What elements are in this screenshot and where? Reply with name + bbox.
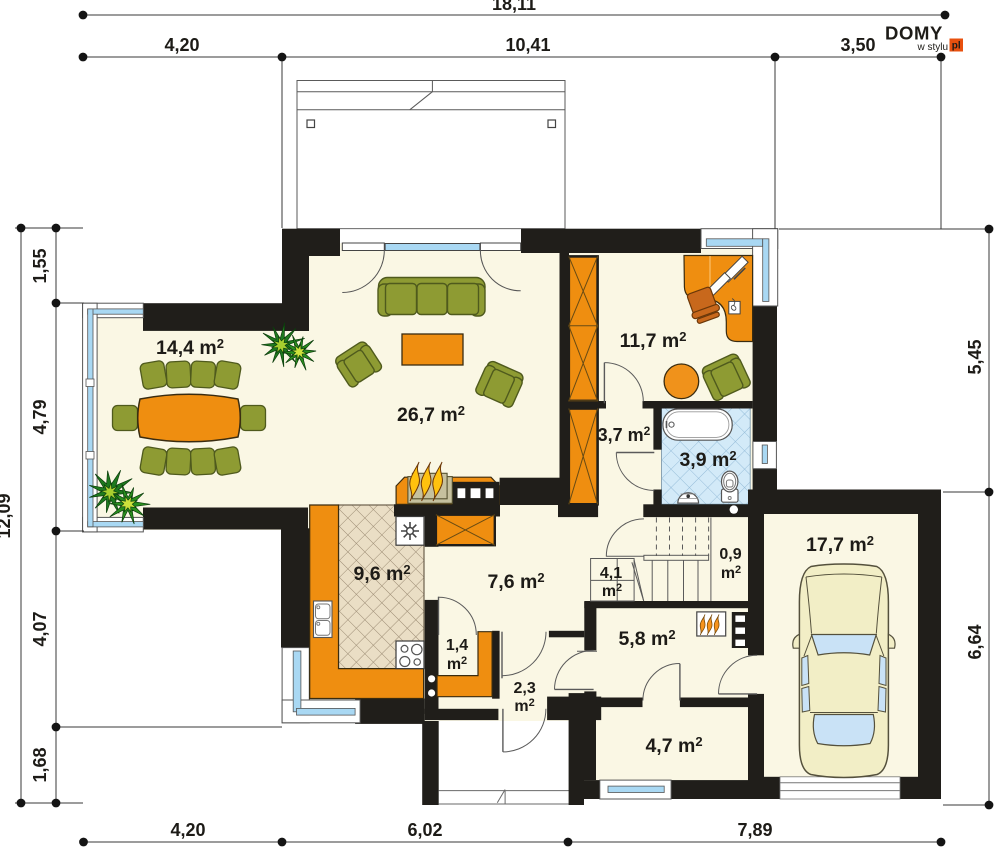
svg-text:4,7 m2: 4,7 m2 [645,734,702,757]
svg-text:7,6 m2: 7,6 m2 [487,570,544,593]
svg-text:17,7 m2: 17,7 m2 [806,533,874,556]
svg-text:18,11: 18,11 [492,0,536,14]
svg-text:10,41: 10,41 [505,35,550,55]
svg-text:3,7 m2: 3,7 m2 [598,424,651,445]
svg-text:6,64: 6,64 [965,624,985,659]
svg-text:4,79: 4,79 [30,399,50,434]
svg-text:pl: pl [952,41,961,52]
svg-text:5,8 m2: 5,8 m2 [618,627,675,650]
svg-text:4,1: 4,1 [600,565,622,582]
svg-text:12,09: 12,09 [0,493,14,538]
svg-text:w stylu: w stylu [916,42,948,53]
svg-text:2,3: 2,3 [513,680,535,697]
svg-text:26,7 m2: 26,7 m2 [397,403,465,426]
svg-text:3,50: 3,50 [840,35,875,55]
svg-text:4,20: 4,20 [170,820,205,840]
svg-text:5,45: 5,45 [965,339,985,374]
svg-text:7,89: 7,89 [737,820,772,840]
svg-text:DOMY: DOMY [885,23,943,44]
svg-text:1,55: 1,55 [30,248,50,283]
svg-text:1,68: 1,68 [30,747,50,782]
svg-text:1,4: 1,4 [446,637,468,654]
svg-text:3,9 m2: 3,9 m2 [679,448,736,471]
svg-text:4,07: 4,07 [30,611,50,646]
svg-text:14,4 m2: 14,4 m2 [156,336,224,359]
svg-text:4,20: 4,20 [164,35,199,55]
svg-text:0,9: 0,9 [719,546,741,563]
svg-text:6,02: 6,02 [407,820,442,840]
svg-text:11,7 m2: 11,7 m2 [620,329,687,352]
svg-text:9,6 m2: 9,6 m2 [353,562,410,585]
